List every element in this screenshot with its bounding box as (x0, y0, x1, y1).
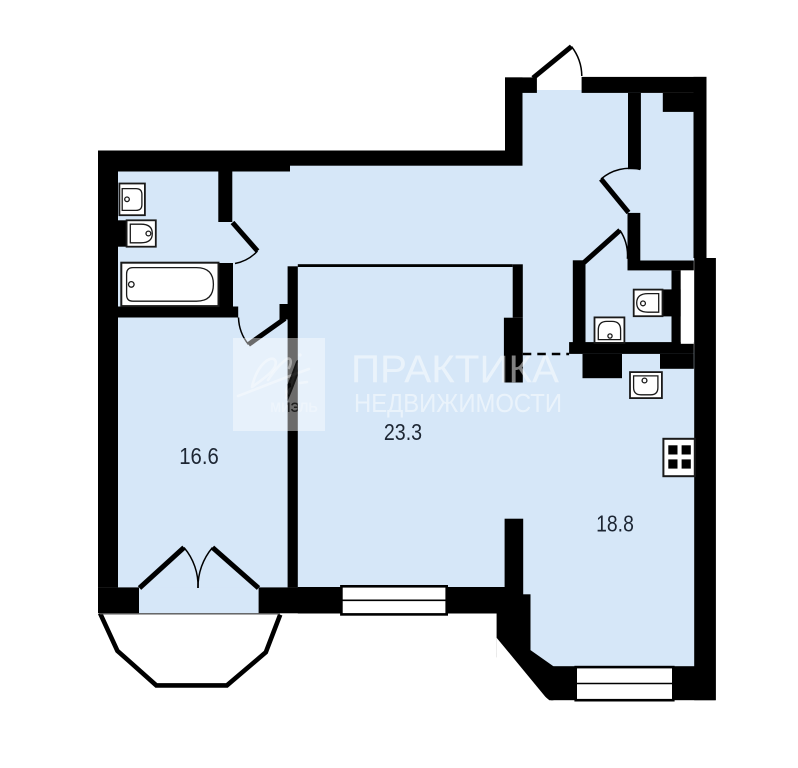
svg-text:23.3: 23.3 (384, 419, 422, 445)
svg-text:16.6: 16.6 (179, 443, 219, 469)
svg-text:18.8: 18.8 (596, 511, 634, 537)
svg-text:НЕДВИЖИМОСТИ: НЕДВИЖИМОСТИ (354, 388, 562, 418)
svg-text:ПРАКТИКА: ПРАКТИКА (351, 348, 559, 391)
